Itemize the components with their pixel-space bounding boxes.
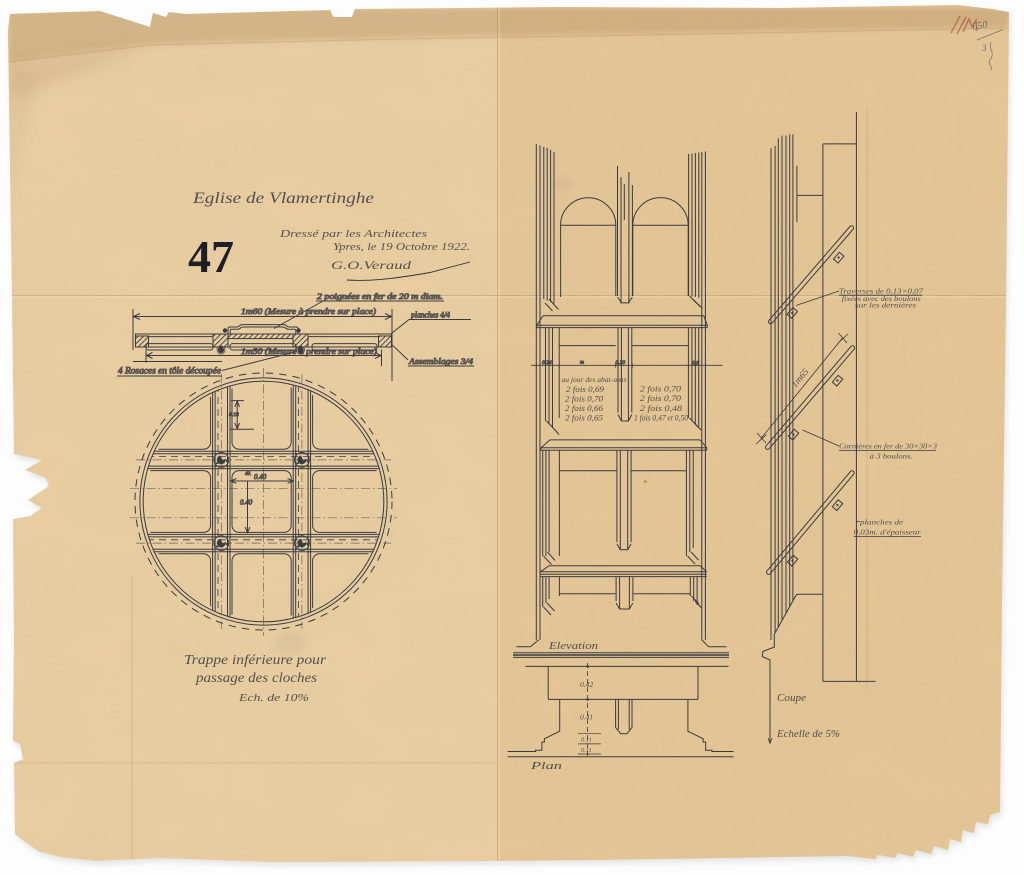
svg-text:1 fois 0,47 et 0,50: 1 fois 0,47 et 0,50	[634, 414, 688, 423]
svg-text:Coupe: Coupe	[777, 692, 806, 704]
svg-text:0.40: 0.40	[254, 473, 267, 481]
svg-text:Trappe inférieure pour: Trappe inférieure pour	[184, 652, 327, 667]
svg-text:Ypres, le 19 Octobre 1922.: Ypres, le 19 Octobre 1922.	[333, 242, 470, 253]
svg-text:0.40: 0.40	[240, 499, 253, 507]
svg-text:3: 3	[981, 43, 987, 53]
svg-text:2 fois 0,70: 2 fois 0,70	[640, 394, 681, 403]
svg-text:Cornières en fer de 30×30×3: Cornières en fer de 30×30×3	[839, 443, 938, 451]
svg-text:2 fois 0,65: 2 fois 0,65	[565, 414, 603, 423]
svg-text:0.11: 0.11	[581, 737, 592, 744]
svg-text:passage des cloches: passage des cloches	[195, 670, 317, 685]
svg-text:0.18: 0.18	[229, 412, 239, 418]
svg-text:0.20: 0.20	[616, 360, 626, 366]
svg-text:Plan: Plan	[530, 760, 563, 772]
svg-text:2 fois 0,70: 2 fois 0,70	[565, 395, 603, 404]
svg-text:0,03m. d'épaisseur: 0,03m. d'épaisseur	[854, 529, 921, 537]
svg-text:planches de: planches de	[859, 519, 903, 527]
svg-text:Assemblages 3/4: Assemblages 3/4	[408, 356, 474, 366]
svg-text:2 fois 0,70: 2 fois 0,70	[640, 385, 681, 394]
svg-text:Dressé par les Architectes: Dressé par les Architectes	[279, 229, 428, 240]
svg-text:0.24: 0.24	[542, 359, 552, 366]
svg-text:1m50 (Mesure à prendre sur pla: 1m50 (Mesure à prendre sur place)	[241, 346, 377, 356]
svg-text:47: 47	[188, 231, 234, 282]
svg-text:m: m	[580, 360, 584, 366]
svg-text:0.11: 0.11	[581, 747, 592, 754]
svg-text:4 Rosaces en tôle découpée: 4 Rosaces en tôle découpée	[118, 366, 221, 376]
svg-text:0.41: 0.41	[580, 713, 593, 722]
svg-text:0.8: 0.8	[692, 361, 699, 367]
svg-text:planches 4/4: planches 4/4	[410, 311, 450, 320]
svg-text:1m60 (Mesure à prendre sur pla: 1m60 (Mesure à prendre sur place)	[241, 306, 376, 316]
svg-text:sur les dernières: sur les dernières	[855, 302, 916, 310]
svg-text:G.O.Veraud: G.O.Veraud	[331, 258, 412, 272]
svg-text:Eglise de Vlamertinghe: Eglise de Vlamertinghe	[192, 190, 374, 207]
svg-text:40.: 40.	[245, 472, 251, 477]
svg-text:0.42: 0.42	[580, 680, 593, 689]
svg-text:2 fois 0,66: 2 fois 0,66	[565, 404, 603, 413]
svg-text:Echelle de 5%: Echelle de 5%	[776, 729, 840, 740]
svg-text:au jour des abat-sons: au jour des abat-sons	[562, 375, 627, 384]
svg-text:Elevation: Elevation	[548, 640, 599, 652]
svg-text:Ech. de 10%: Ech. de 10%	[238, 692, 309, 704]
svg-text:2 poignées en fer de 20 m diam: 2 poignées en fer de 20 m diam.	[317, 292, 443, 301]
svg-text:2 fois 0,48: 2 fois 0,48	[640, 404, 682, 413]
svg-text:à 3 boulons.: à 3 boulons.	[870, 453, 913, 461]
svg-text:2 fois 0,69: 2 fois 0,69	[566, 385, 604, 394]
